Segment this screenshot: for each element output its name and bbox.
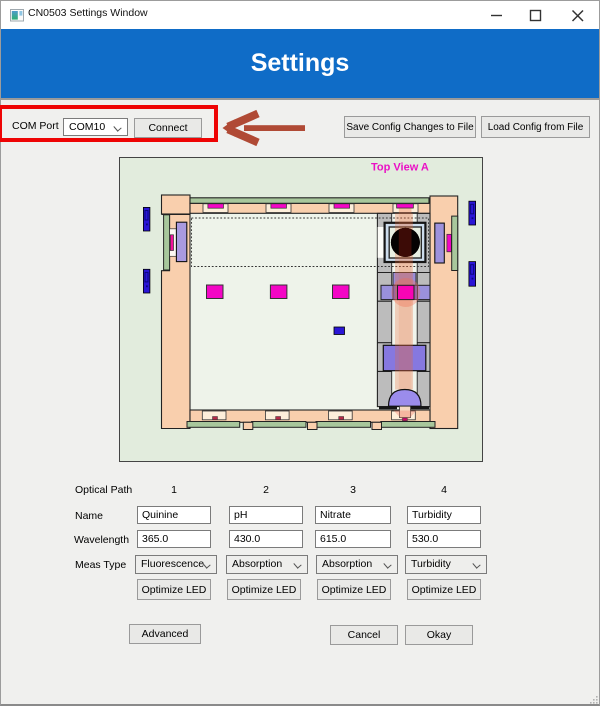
svg-text:Top View A: Top View A <box>371 162 429 174</box>
